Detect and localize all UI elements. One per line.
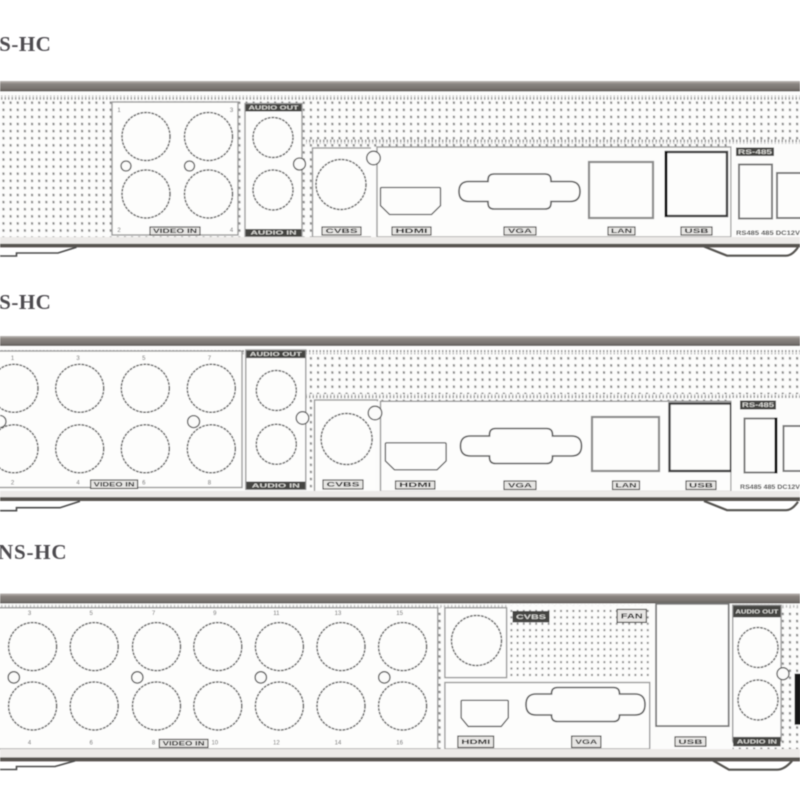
svg-text:14: 14: [335, 741, 342, 747]
svg-text:AUDIO OUT: AUDIO OUT: [250, 352, 302, 358]
svg-text:VIDEO IN: VIDEO IN: [94, 482, 135, 488]
svg-text:12: 12: [273, 741, 280, 747]
svg-text:USB: USB: [685, 229, 710, 235]
svg-text:13: 13: [335, 611, 342, 617]
svg-text:VIDEO IN: VIDEO IN: [163, 742, 205, 748]
svg-text:FAN: FAN: [621, 613, 643, 620]
svg-text:AUDIO OUT: AUDIO OUT: [249, 106, 299, 112]
svg-text:HDMI: HDMI: [396, 229, 429, 235]
svg-text:NS-HC: NS-HC: [0, 290, 51, 314]
svg-text:NS-HC: NS-HC: [0, 540, 67, 564]
svg-text:16: 16: [396, 741, 403, 747]
svg-text:HDMI: HDMI: [399, 483, 432, 489]
svg-text:15: 15: [396, 611, 403, 617]
svg-text:VGA: VGA: [508, 483, 533, 489]
svg-text:10: 10: [211, 741, 218, 747]
svg-text:AUDIO OUT: AUDIO OUT: [735, 609, 779, 615]
svg-text:LAN: LAN: [611, 229, 632, 235]
svg-text:RS-485: RS-485: [742, 403, 775, 409]
svg-text:USB: USB: [689, 483, 714, 489]
svg-text:RS485 485 DC12V: RS485 485 DC12V: [736, 230, 800, 237]
svg-text:11: 11: [273, 611, 280, 617]
svg-text:RS485 485 DC12V: RS485 485 DC12V: [740, 484, 800, 491]
svg-text:USB: USB: [678, 739, 703, 746]
svg-text:AUDIO IN: AUDIO IN: [737, 740, 777, 746]
svg-text:CVBS: CVBS: [516, 614, 547, 621]
svg-text:CVBS: CVBS: [327, 483, 360, 489]
svg-text:AUDIO IN: AUDIO IN: [252, 483, 301, 489]
svg-text:LAN: LAN: [616, 483, 637, 489]
svg-text:VGA: VGA: [508, 229, 533, 235]
svg-text:VGA: VGA: [575, 739, 597, 746]
svg-text:RS-485: RS-485: [738, 150, 773, 156]
svg-text:HDMI: HDMI: [461, 739, 490, 746]
svg-text:NS-HC: NS-HC: [0, 32, 51, 56]
svg-text:VIDEO IN: VIDEO IN: [153, 229, 197, 235]
svg-text:AUDIO IN: AUDIO IN: [251, 231, 298, 237]
svg-text:CVBS: CVBS: [326, 229, 358, 235]
